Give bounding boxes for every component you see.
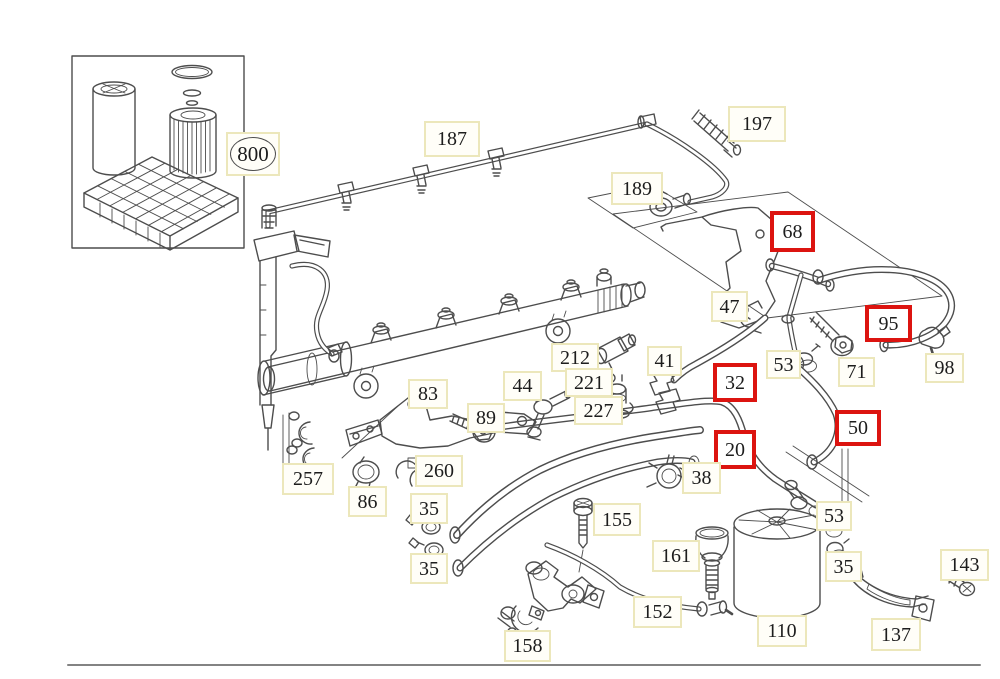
fitting-212 [596,334,636,369]
part-label-38[interactable]: 38 [682,462,721,494]
part-label-257[interactable]: 257 [282,463,334,495]
part-label-143[interactable]: 143 [940,549,989,581]
part-label-32-highlighted[interactable]: 32 [713,363,757,402]
part-label-158[interactable]: 158 [504,630,551,662]
part-label-68-highlighted[interactable]: 68 [770,211,815,252]
bolt-71 [810,312,853,356]
injector-assembly [254,231,342,450]
part-label-161[interactable]: 161 [652,540,700,572]
fuel-return-line-187 [262,114,727,228]
part-label-137[interactable]: 137 [871,618,921,651]
part-label-800[interactable]: 800 [226,132,280,176]
part-label-47[interactable]: 47 [711,291,748,322]
part-label-86[interactable]: 86 [348,486,387,517]
part-label-41[interactable]: 41 [647,346,682,376]
part-label-71[interactable]: 71 [838,357,875,387]
part-label-83[interactable]: 83 [408,379,448,409]
part-label-53-lower[interactable]: 53 [816,501,852,531]
valve-161 [696,527,728,599]
part-label-152[interactable]: 152 [633,596,682,628]
part-label-50-highlighted[interactable]: 50 [835,410,881,446]
part-label-260[interactable]: 260 [415,455,463,487]
part-label-155[interactable]: 155 [593,503,641,536]
part-label-800-circle: 800 [230,137,276,171]
part-label-53-upper[interactable]: 53 [766,350,801,379]
part-label-187[interactable]: 187 [424,121,480,157]
part-label-35-right[interactable]: 35 [825,551,862,582]
part-label-189[interactable]: 189 [611,172,663,205]
part-label-110[interactable]: 110 [757,615,807,647]
part-label-227[interactable]: 227 [574,396,623,425]
part-label-89[interactable]: 89 [467,403,505,433]
part-label-197[interactable]: 197 [728,106,786,142]
filter-kit-box [72,56,244,250]
parts-diagram-page: 800 187 197 189 68 47 95 212 221 227 41 … [0,0,1000,679]
part-label-44[interactable]: 44 [503,371,542,401]
metering-unit-152 [526,545,732,616]
part-label-95-highlighted[interactable]: 95 [865,305,912,342]
part-label-35-upper-left[interactable]: 35 [410,493,448,524]
part-label-221[interactable]: 221 [565,368,613,397]
part-label-35-lower-left[interactable]: 35 [410,553,448,584]
part-label-98[interactable]: 98 [925,353,964,383]
